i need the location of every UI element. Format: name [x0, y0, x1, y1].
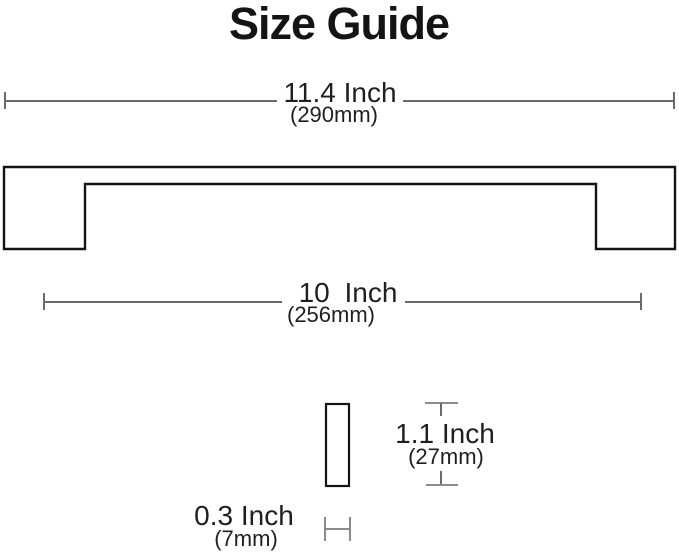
dimension-end-tick-right — [640, 293, 642, 310]
dimension-line-segment — [326, 528, 349, 530]
dimension-end-tick-right — [349, 517, 351, 541]
hole-spacing-mm-label: (256mm) — [287, 304, 375, 326]
handle-side-view-shape — [326, 404, 349, 486]
dimension-bottom-tick-bar — [426, 484, 458, 486]
dimension-line-right-segment — [405, 301, 641, 303]
height-mm-label: (27mm) — [408, 446, 484, 468]
dimension-bottom-tick-stem — [440, 471, 442, 484]
dimension-line-left-segment — [44, 301, 282, 303]
dimension-top-tick-stem — [440, 403, 442, 416]
handle-front-view-shape — [4, 167, 675, 249]
size-guide-page: Size Guide 11.4 Inch (290mm) 10 Inch (25… — [0, 0, 679, 553]
thickness-mm-label: (7mm) — [214, 528, 278, 550]
